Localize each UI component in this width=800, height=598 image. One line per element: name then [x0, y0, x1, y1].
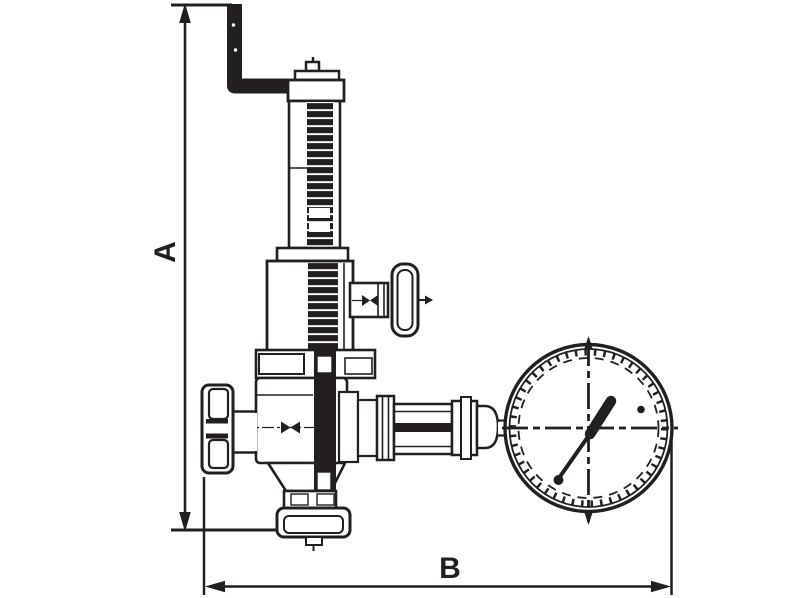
housing-collar: [277, 248, 348, 261]
gauge-adapter: [477, 406, 498, 448]
dimension-a-label: A: [151, 241, 181, 263]
valve-drawing: [0, 0, 800, 598]
outlet-flange: [277, 508, 350, 551]
spring-coils: [308, 263, 338, 350]
inlet-flange: [202, 385, 257, 473]
gauge-connection-fittings: [339, 392, 508, 462]
dim-b-arrow-left: [205, 581, 225, 593]
spindle-tip: [425, 296, 433, 305]
technical-drawing-canvas: A B: [0, 0, 800, 598]
top-bent-pipe: [232, 4, 289, 86]
fitting-bore: [395, 423, 451, 432]
dimension-b-label: B: [439, 554, 461, 584]
pressure-gauge: [502, 336, 678, 525]
adjuster-cap: [288, 57, 344, 101]
hex-nut: [377, 396, 394, 460]
pipe-highlight-dot: [232, 23, 235, 26]
outlet-stub: [306, 537, 322, 545]
dim-b-arrow-right: [651, 581, 671, 593]
gauge-needle-hub-dot: [554, 475, 564, 485]
pipe-highlight-dot: [234, 48, 237, 51]
side-vent-valve: [350, 264, 433, 336]
gauge-dial-dot: [637, 406, 645, 414]
spring-housing: [267, 248, 353, 352]
threaded-stem: [289, 101, 340, 248]
